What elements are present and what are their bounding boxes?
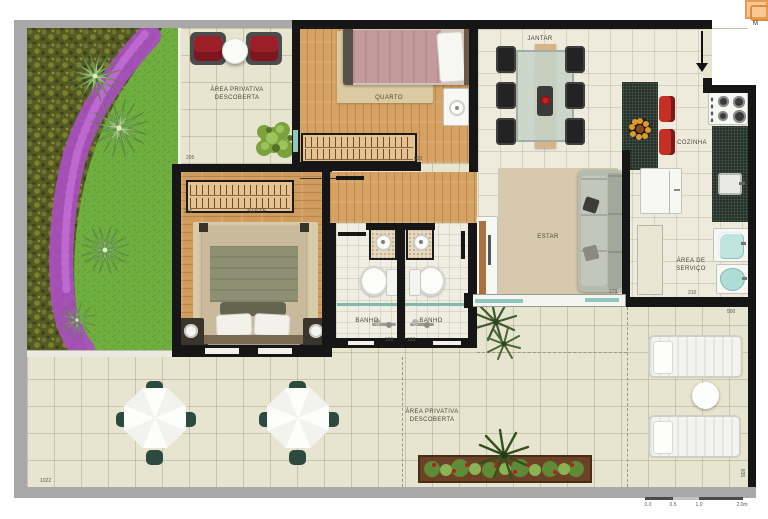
service-counter [637, 225, 663, 295]
wall-segment [397, 223, 405, 348]
nightstand [443, 88, 469, 126]
dining-chair [565, 82, 585, 109]
dim-label: 1022 [40, 478, 51, 484]
entry-arrow-icon [696, 31, 708, 73]
dim-label: 279 [609, 289, 617, 295]
room-label-banho-1: BANHO [355, 318, 378, 326]
wardrobe-hangers [186, 180, 294, 213]
wall-segment [330, 223, 336, 345]
dining-chair [496, 46, 516, 73]
locator-thumbnail [745, 0, 768, 19]
sun-lounger [648, 335, 743, 378]
scale-bar: 0.0 0.5 1.0 2.0m [638, 493, 764, 511]
wall-segment [622, 150, 630, 307]
bar-stool [659, 96, 675, 122]
palm-plant-icon [470, 300, 532, 362]
laundry-tub-icon [716, 264, 749, 294]
glass-partition [405, 303, 468, 306]
room-label-patio-top: ÁREA PRIVATIVADESCOBERTA [210, 87, 263, 103]
dim-label: 205 [186, 155, 194, 161]
palm-plant-icon [474, 425, 534, 483]
dim-label: 120 [385, 337, 393, 343]
centerpiece [537, 86, 553, 116]
kitchen-sink-icon [718, 173, 742, 195]
room-label-banho-2: BANHO [419, 318, 442, 326]
patio-garden-divider [178, 28, 181, 165]
wardrobe-hangers [301, 133, 417, 163]
scale-tick: 0.0 [645, 502, 652, 508]
wall-segment [748, 305, 756, 487]
tv-panel [476, 216, 498, 306]
refrigerator-icon [640, 168, 682, 214]
wall-segment [322, 164, 330, 357]
dining-chair [496, 82, 516, 109]
wall-segment [469, 20, 478, 172]
scale-tick: 0.5 [670, 502, 677, 508]
sofa [578, 170, 624, 292]
dim-label: 500 [727, 309, 735, 315]
door-swing [300, 178, 336, 179]
window-segment [293, 130, 298, 152]
dim-label: 020 [414, 156, 422, 162]
wall-segment [172, 164, 181, 357]
garden-curb [27, 350, 172, 357]
dining-chair [565, 46, 585, 73]
room-label-suite: SUITE [247, 209, 267, 217]
scale-tick: 2.0m [736, 502, 747, 508]
single-bed [343, 28, 469, 85]
round-table [222, 38, 248, 64]
terrace-chair [146, 450, 163, 465]
washing-machine-icon [713, 228, 749, 262]
side-table [692, 382, 719, 409]
wall-segment [748, 85, 756, 307]
sliding-door-glass [466, 294, 626, 307]
door-leaf [336, 176, 364, 180]
wall-segment [622, 297, 756, 307]
locator-label: M [753, 21, 758, 27]
terrace-chair [289, 450, 306, 465]
dim-label: 120 [407, 337, 415, 343]
room-label-cozinha: COZINHA [677, 140, 707, 148]
wall-segment [292, 20, 712, 29]
dashed-projection-line [627, 307, 628, 487]
outside-area [712, 29, 768, 85]
window-segment [205, 348, 239, 354]
bar-stool [659, 129, 675, 155]
door-leaf [461, 231, 465, 259]
dim-label: 210 [688, 290, 696, 296]
room-label-servico: ÁREA DESERVIÇO [676, 258, 706, 274]
window-segment [433, 341, 461, 345]
washbasin-icon [406, 226, 434, 260]
red-armchair [246, 32, 282, 65]
wall-segment [299, 162, 421, 171]
room-label-quarto: QUARTO [375, 95, 403, 103]
washbasin-icon [369, 226, 397, 260]
frame-left [14, 20, 27, 498]
wall-segment [172, 345, 332, 357]
double-bed [202, 226, 306, 344]
window-segment [348, 341, 374, 345]
garden [27, 28, 178, 350]
glass-partition [337, 303, 397, 306]
room-label-terrace: ÁREA PRIVATIVADESCOBERTA [405, 409, 458, 425]
door-leaf [338, 232, 366, 236]
dim-label: 835 [739, 469, 745, 477]
cooktop-icon [708, 92, 748, 125]
wall-segment [405, 223, 435, 230]
scale-tick: 1.0 [696, 502, 703, 508]
wall-segment [464, 293, 473, 308]
wall-segment [468, 223, 477, 348]
sun-lounger [648, 415, 741, 458]
dining-chair [565, 118, 585, 145]
flower-bowl-icon [627, 116, 653, 142]
dashed-projection-line [402, 357, 403, 487]
window-segment [258, 348, 292, 354]
room-label-jantar: JANTAR [527, 36, 552, 44]
dim-label: 279 [184, 209, 192, 215]
tv-icon [488, 235, 491, 265]
red-armchair [190, 32, 226, 65]
dining-chair [496, 118, 516, 145]
nightstand [178, 318, 204, 345]
terrace-table [124, 388, 186, 448]
toilet-icon [407, 265, 445, 298]
floor-plan: ÁREA PRIVATIVADESCOBERTA QUARTO SUITE BA… [0, 0, 768, 519]
room-label-estar: ESTAR [537, 234, 559, 242]
toilet-icon [360, 265, 398, 298]
wall-segment [366, 223, 397, 230]
